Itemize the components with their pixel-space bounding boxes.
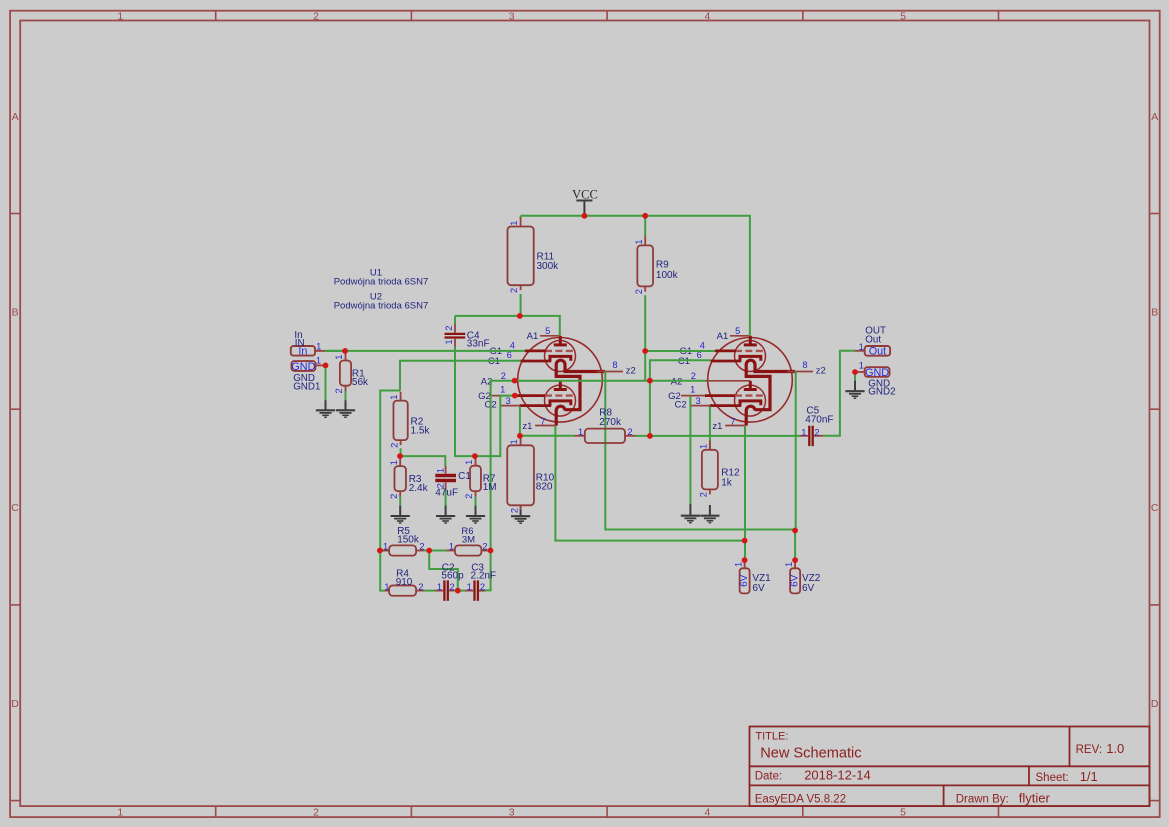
svg-text:EasyEDA V5.8.22: EasyEDA V5.8.22	[755, 794, 846, 806]
svg-text:GND: GND	[291, 361, 315, 373]
svg-text:C1: C1	[458, 471, 471, 482]
svg-text:GND1: GND1	[293, 382, 320, 393]
svg-text:56k: 56k	[352, 377, 369, 388]
svg-text:1: 1	[316, 356, 321, 366]
svg-text:B: B	[12, 307, 19, 319]
svg-text:1: 1	[801, 427, 806, 437]
svg-text:33nF: 33nF	[467, 339, 490, 350]
svg-text:z1: z1	[522, 421, 532, 432]
svg-text:1: 1	[500, 385, 505, 395]
svg-text:z1: z1	[712, 421, 722, 432]
svg-text:1: 1	[316, 342, 321, 352]
svg-text:Drawn By:: Drawn By:	[956, 793, 1009, 805]
svg-text:100k: 100k	[656, 270, 679, 281]
svg-text:270k: 270k	[599, 417, 622, 428]
svg-text:7: 7	[540, 416, 545, 426]
svg-text:3: 3	[696, 396, 701, 406]
svg-text:C2: C2	[675, 400, 687, 411]
svg-text:1M: 1M	[483, 482, 497, 493]
svg-text:D: D	[1151, 698, 1159, 710]
svg-text:A: A	[1151, 111, 1158, 123]
svg-text:IN: IN	[295, 338, 305, 349]
svg-text:Out: Out	[865, 334, 881, 345]
svg-text:REV:: REV:	[1076, 744, 1102, 756]
svg-text:z2: z2	[626, 365, 636, 376]
svg-text:3: 3	[509, 10, 515, 22]
svg-text:1: 1	[435, 468, 445, 473]
svg-text:1: 1	[384, 582, 389, 592]
svg-text:1: 1	[464, 460, 474, 465]
svg-text:1k: 1k	[721, 478, 733, 489]
svg-text:TITLE:: TITLE:	[755, 730, 788, 742]
svg-text:5: 5	[900, 806, 906, 818]
svg-text:150k: 150k	[397, 535, 420, 546]
svg-text:1: 1	[690, 385, 695, 395]
svg-text:560p: 560p	[441, 570, 464, 581]
svg-text:1: 1	[509, 221, 519, 226]
svg-text:1: 1	[859, 361, 864, 371]
svg-text:1/1: 1/1	[1080, 769, 1098, 784]
svg-text:Podwójna trioda 6SN7: Podwójna trioda 6SN7	[334, 276, 429, 287]
svg-text:8: 8	[612, 360, 617, 370]
svg-text:1: 1	[383, 542, 388, 552]
svg-text:2: 2	[389, 443, 399, 448]
svg-text:4: 4	[510, 341, 515, 351]
svg-text:2: 2	[691, 371, 696, 381]
svg-text:6V: 6V	[802, 583, 815, 594]
svg-text:1: 1	[578, 427, 583, 437]
svg-text:1: 1	[334, 355, 344, 360]
svg-text:GND: GND	[865, 367, 889, 379]
svg-text:2: 2	[464, 494, 474, 499]
svg-text:2: 2	[699, 492, 709, 497]
svg-text:4: 4	[704, 10, 710, 22]
svg-text:1: 1	[437, 582, 442, 592]
svg-text:470nF: 470nF	[805, 415, 833, 426]
svg-text:5: 5	[735, 326, 740, 336]
svg-text:6V: 6V	[752, 583, 765, 594]
svg-text:B: B	[1151, 307, 1158, 319]
svg-text:7: 7	[730, 416, 735, 426]
svg-text:A2: A2	[671, 376, 683, 387]
svg-text:2: 2	[418, 582, 423, 592]
svg-text:5: 5	[900, 10, 906, 22]
svg-text:1: 1	[509, 439, 519, 444]
svg-text:Sheet:: Sheet:	[1036, 772, 1069, 784]
svg-text:1: 1	[449, 542, 454, 552]
svg-text:2.2nF: 2.2nF	[471, 570, 497, 581]
svg-text:2: 2	[334, 388, 344, 393]
svg-text:4: 4	[700, 341, 705, 351]
svg-text:5: 5	[545, 326, 550, 336]
svg-text:New Schematic: New Schematic	[760, 745, 861, 761]
svg-text:2: 2	[389, 494, 399, 499]
svg-text:z2: z2	[816, 365, 826, 376]
svg-text:2: 2	[627, 427, 632, 437]
svg-text:GND2: GND2	[868, 386, 895, 397]
svg-text:Podwójna trioda 6SN7: Podwójna trioda 6SN7	[334, 300, 429, 311]
svg-text:3: 3	[509, 806, 515, 818]
svg-text:C1: C1	[678, 356, 690, 367]
svg-text:2: 2	[419, 542, 424, 552]
svg-text:6V: 6V	[790, 574, 801, 587]
svg-text:2: 2	[634, 289, 644, 294]
svg-text:2: 2	[444, 326, 454, 331]
svg-text:Out: Out	[869, 346, 886, 358]
svg-text:2: 2	[814, 427, 819, 437]
svg-text:Date:: Date:	[755, 771, 783, 783]
svg-text:820: 820	[536, 482, 553, 493]
svg-text:C: C	[11, 502, 19, 514]
svg-text:1: 1	[859, 342, 864, 352]
svg-text:2018-12-14: 2018-12-14	[804, 768, 871, 783]
svg-text:47uF: 47uF	[435, 487, 458, 498]
svg-text:flytier: flytier	[1019, 790, 1051, 805]
svg-text:1: 1	[734, 562, 744, 567]
svg-text:3: 3	[506, 396, 511, 406]
svg-text:6V: 6V	[739, 574, 750, 587]
svg-text:1: 1	[117, 806, 123, 818]
svg-text:1: 1	[634, 239, 644, 244]
svg-text:1.0: 1.0	[1106, 741, 1124, 756]
svg-text:A1: A1	[527, 331, 539, 342]
svg-text:1: 1	[389, 460, 399, 465]
svg-text:1: 1	[389, 395, 399, 400]
svg-text:C: C	[1151, 502, 1159, 514]
svg-text:1.5k: 1.5k	[411, 426, 431, 437]
svg-text:1: 1	[784, 562, 794, 567]
svg-text:1: 1	[117, 10, 123, 22]
svg-text:2: 2	[313, 806, 319, 818]
svg-text:1: 1	[699, 444, 709, 449]
svg-text:1: 1	[444, 339, 454, 344]
svg-text:2: 2	[509, 508, 519, 513]
svg-text:A1: A1	[717, 331, 729, 342]
svg-text:2: 2	[501, 371, 506, 381]
svg-text:2: 2	[482, 542, 487, 552]
svg-text:8: 8	[802, 360, 807, 370]
svg-text:D: D	[11, 698, 19, 710]
svg-text:A: A	[12, 111, 19, 123]
svg-text:4: 4	[704, 806, 710, 818]
svg-text:1: 1	[467, 582, 472, 592]
svg-text:2: 2	[480, 582, 485, 592]
svg-text:910: 910	[396, 577, 413, 588]
svg-text:3M: 3M	[462, 535, 475, 546]
svg-text:2: 2	[509, 288, 519, 293]
svg-text:VCC: VCC	[572, 187, 598, 201]
svg-text:2: 2	[450, 582, 455, 592]
svg-text:2.4k: 2.4k	[409, 483, 429, 494]
svg-text:300k: 300k	[537, 261, 560, 272]
svg-text:2: 2	[313, 10, 319, 22]
